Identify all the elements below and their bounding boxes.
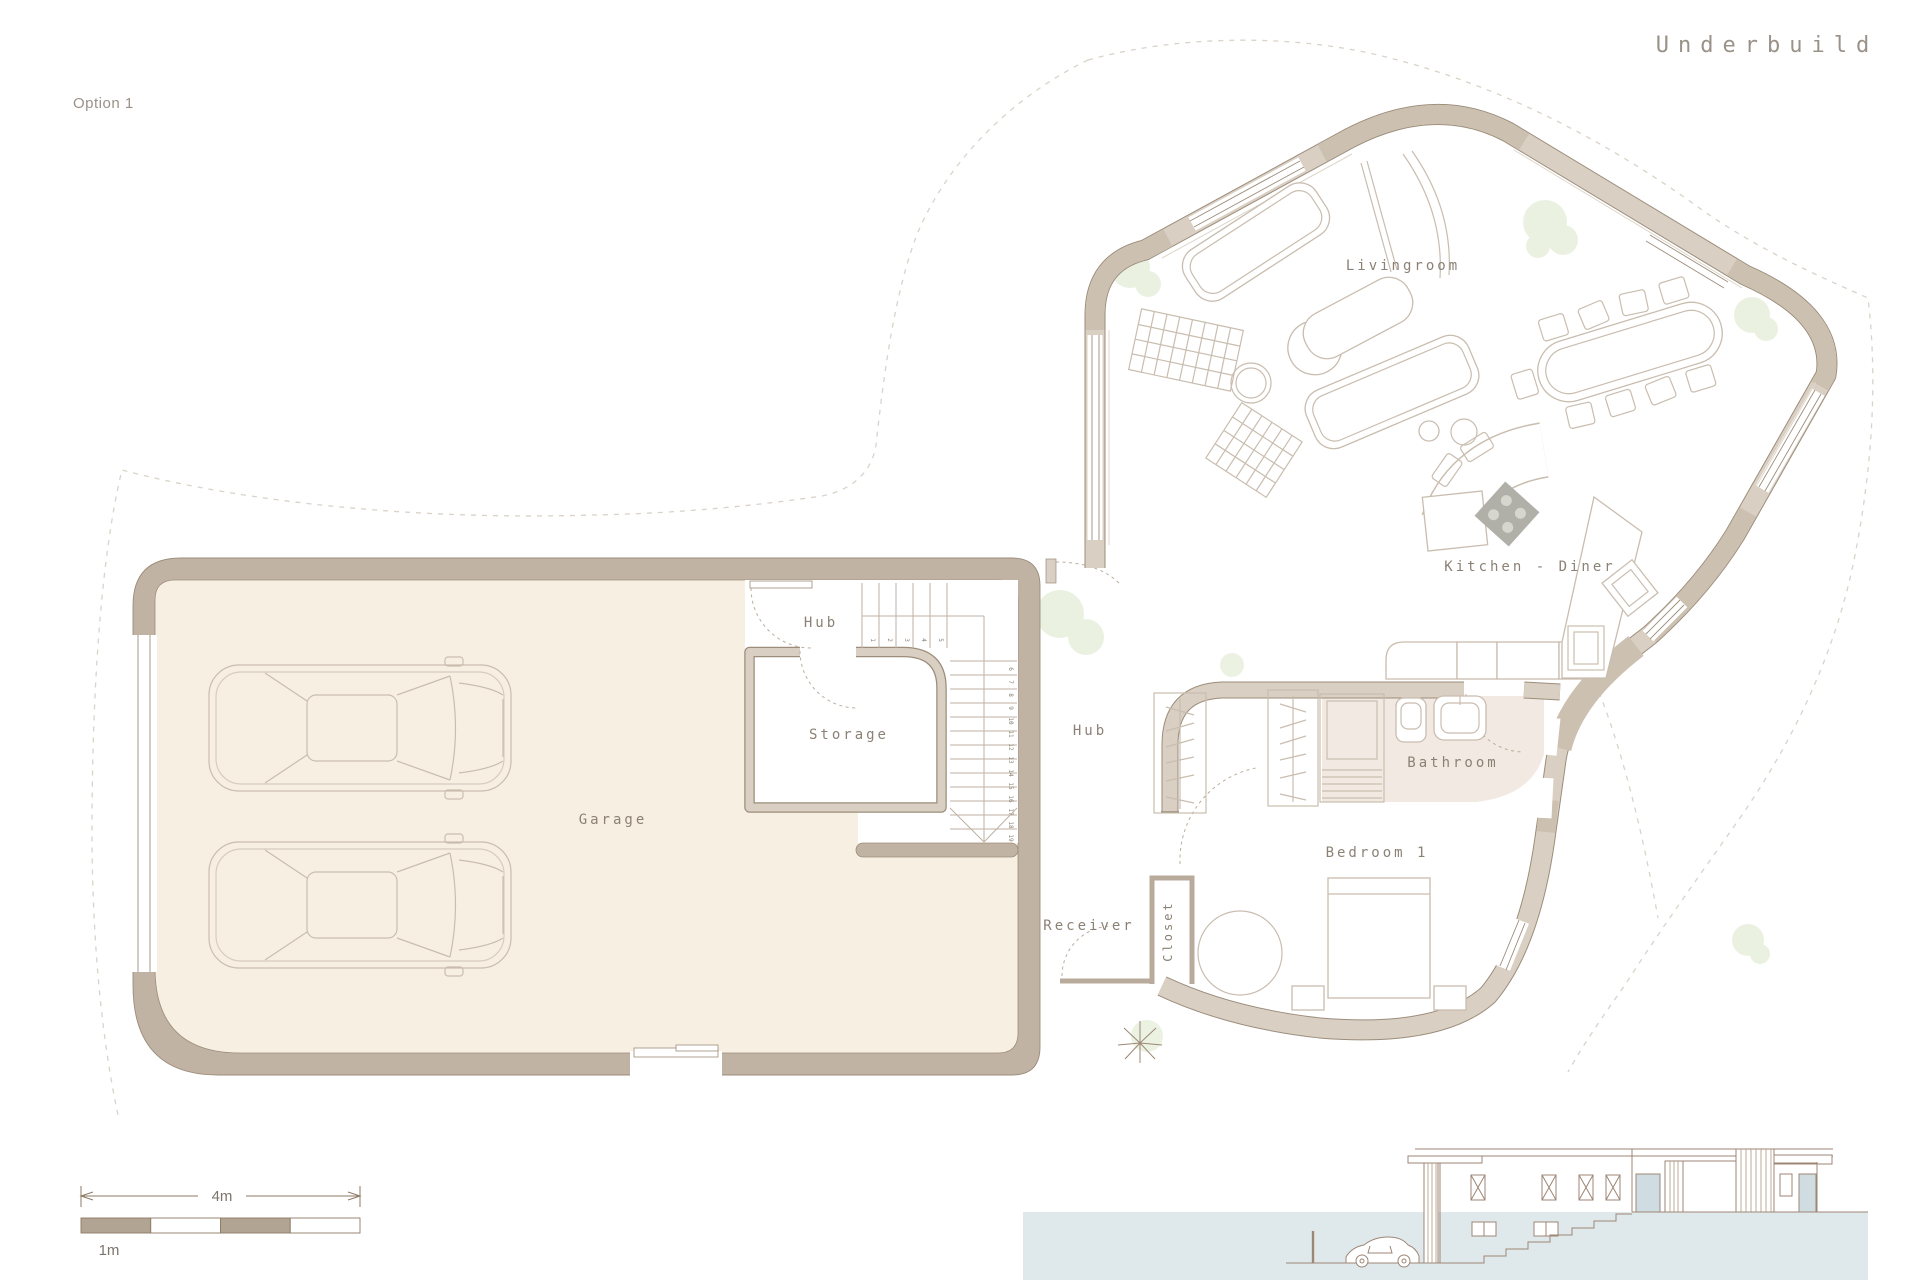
sheet-title: Underbuild [1656, 33, 1878, 58]
bathroom-floor [1322, 696, 1544, 802]
tree [1135, 271, 1161, 297]
label-kitchen-diner: Kitchen - Diner [1444, 559, 1615, 575]
garage-window-west [131, 635, 157, 972]
stair-number: 9 [1007, 706, 1014, 710]
stair-number: 12 [1007, 743, 1014, 751]
bedroom-suite [1060, 690, 1560, 1010]
island-end-unit [1422, 491, 1487, 551]
tree [1754, 317, 1778, 341]
counter-run-2 [1457, 642, 1497, 679]
stair-number: 15 [1007, 782, 1014, 790]
label-storage: Storage [809, 727, 889, 743]
scale-unit-label: 1m [99, 1242, 120, 1259]
pouf [1231, 363, 1271, 403]
bedside-table-left [1292, 986, 1324, 1010]
stair-number: 5 [937, 638, 944, 642]
counter-run-1 [1386, 642, 1457, 679]
stair-number: 2 [886, 638, 893, 642]
toilet [1396, 698, 1426, 742]
bedroom-door-swing [1180, 768, 1256, 864]
rug-2 [1206, 403, 1302, 498]
understair-wall [856, 843, 1018, 857]
bed [1328, 878, 1430, 998]
wardrobe-right [1268, 690, 1318, 806]
tree [1068, 619, 1104, 655]
stair-number: 11 [1007, 730, 1014, 738]
rug-1 [1129, 309, 1244, 391]
tree [1220, 653, 1244, 677]
window-bathroom-1 [1549, 718, 1553, 755]
corridor-door-leaf [1046, 559, 1056, 583]
tree [1750, 944, 1770, 964]
stair-number: 3 [903, 638, 910, 642]
scale-segments [81, 1218, 360, 1233]
label-receiver: Receiver [1043, 918, 1134, 934]
site-boundary-east [1088, 40, 1873, 1072]
label-bathroom: Bathroom [1407, 755, 1498, 771]
corridor-door [1046, 559, 1120, 584]
stair-number: 17 [1007, 808, 1014, 816]
ground-section [1023, 1212, 1868, 1280]
hub-door-leaf [750, 581, 812, 588]
kitchen [1386, 421, 1658, 679]
stair-number: 18 [1007, 821, 1014, 829]
label-closet: Closet [1161, 900, 1175, 961]
round-rug [1198, 911, 1282, 995]
stair-number: 7 [1007, 680, 1014, 684]
dining-set [1497, 268, 1738, 442]
stair-number: 19 [1007, 834, 1014, 842]
elevation-section [1023, 1149, 1868, 1280]
stair-number: 14 [1007, 769, 1014, 777]
stair-number: 4 [920, 638, 927, 642]
window-bathroom-2 [1544, 778, 1546, 818]
label-hub-lower: Hub [1073, 723, 1107, 739]
scale-total-label: 4m [212, 1188, 233, 1205]
pouf-inner [1236, 368, 1266, 398]
bathroom-sink [1434, 696, 1486, 740]
round-stool [1419, 421, 1439, 441]
stair-number: 8 [1007, 693, 1014, 697]
label-garage: Garage [579, 812, 648, 828]
bedside-table-right [1434, 986, 1466, 1010]
label-hub-upper: Hub [804, 615, 838, 631]
label-bedroom-1: Bedroom 1 [1326, 845, 1429, 861]
window-east-upper [1762, 392, 1818, 489]
counter-run-3 [1497, 642, 1559, 679]
plan-canvas: 1 2 3 4 5 6 7 8 9 10 11 12 13 14 15 16 1… [0, 0, 1920, 1280]
stair-number: 16 [1007, 795, 1014, 803]
stair-number: 1 [869, 638, 876, 642]
option-label: Option 1 [73, 95, 134, 112]
stair-number: 10 [1007, 717, 1014, 725]
tree [1526, 234, 1550, 258]
stair-number: 6 [1007, 667, 1014, 671]
suite-wall-north2 [1524, 690, 1560, 692]
stair-number: 13 [1007, 756, 1014, 764]
wall-corner-apex [1322, 114, 1524, 153]
livingroom-furniture [1129, 151, 1485, 497]
scale-bar: 4m 1m [81, 1186, 360, 1259]
side-table [1451, 419, 1477, 445]
tree [1548, 225, 1578, 255]
garage-rear-door [630, 1045, 722, 1077]
floor-plan-sheet: 1 2 3 4 5 6 7 8 9 10 11 12 13 14 15 16 1… [0, 0, 1920, 1280]
label-livingroom: Livingroom [1346, 258, 1460, 274]
